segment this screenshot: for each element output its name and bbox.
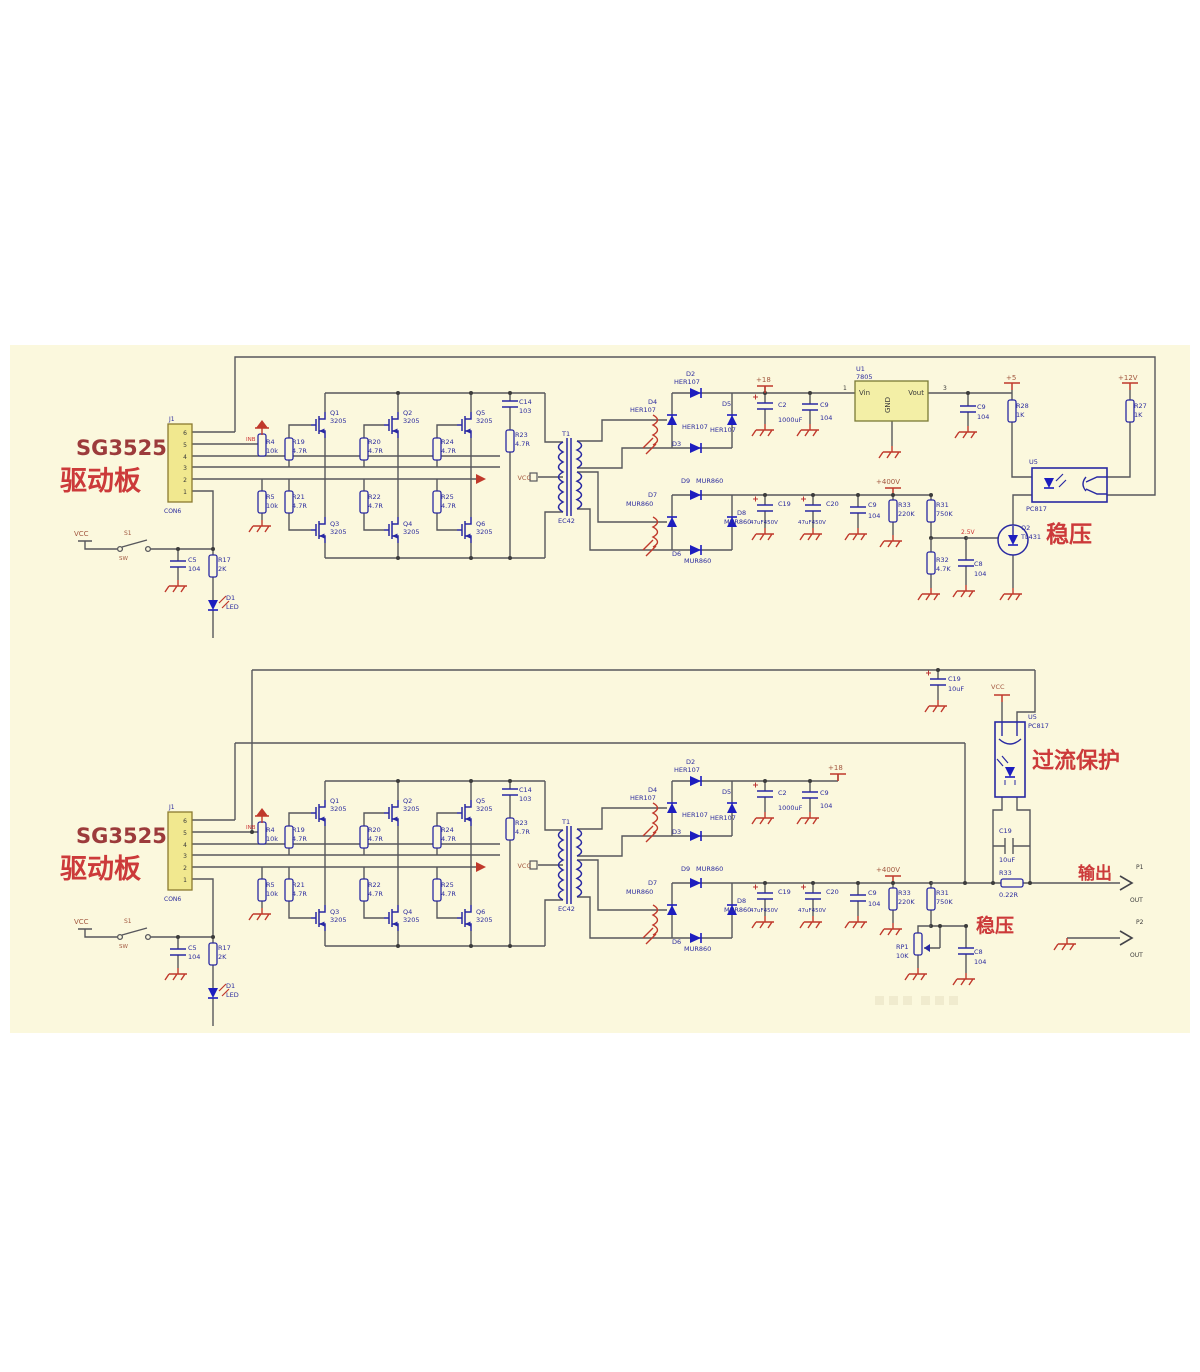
component-label: C19 — [778, 888, 791, 896]
component-label: 4.7K — [936, 565, 951, 573]
component-label: 104 — [820, 414, 832, 422]
component-label: S1 — [124, 530, 132, 537]
component-label: C19 — [778, 500, 791, 508]
component-label: T1 — [561, 818, 570, 826]
component-label: C9 — [977, 403, 986, 411]
component-label: HER107 — [710, 814, 736, 822]
component-label: 10K — [896, 952, 909, 960]
pin-number: 5 — [183, 442, 187, 449]
component-label: C20 — [826, 888, 839, 896]
component-label: 3205 — [476, 916, 493, 924]
component-label: 4.7R — [515, 440, 530, 448]
net-label: +400V — [876, 478, 900, 486]
component-label: 104 — [974, 570, 986, 578]
component-label: TL431 — [1020, 533, 1041, 541]
annotation: 稳压 — [976, 914, 1014, 937]
component-label: 10k — [266, 502, 278, 510]
component-label: 2K — [218, 953, 227, 961]
component-label: PC817 — [1026, 505, 1047, 513]
pin-number: 2 — [183, 865, 187, 872]
net-label: VCC — [517, 862, 531, 870]
component-label: 3205 — [476, 417, 493, 425]
component-label: Q4 — [403, 908, 412, 916]
component-label: T1 — [561, 430, 570, 438]
component-label: D7 — [648, 879, 657, 887]
component-label: 104 — [977, 413, 989, 421]
component-label: 7805 — [856, 373, 873, 381]
component-label: EC42 — [558, 905, 575, 913]
component-label: D1 — [226, 982, 235, 990]
component-label: MUR860 — [696, 477, 723, 485]
net-label: +12V — [1118, 374, 1138, 382]
component-label: R4 — [266, 826, 275, 834]
component-label: R17 — [218, 944, 231, 952]
component-label: MUR860 — [626, 500, 653, 508]
component-label: 0.22R — [999, 891, 1018, 899]
component-label: 3205 — [476, 528, 493, 536]
net-label: VCC — [517, 474, 531, 482]
pin-number: 4 — [183, 454, 187, 461]
component-label: MUR860 — [696, 865, 723, 873]
component-label: 10k — [266, 447, 278, 455]
component-label: R33 — [898, 889, 911, 897]
component-label: 4.7R — [368, 890, 383, 898]
component-label: C9 — [868, 889, 877, 897]
pin-number: 1 — [183, 877, 187, 884]
component-label: C14 — [519, 398, 532, 406]
component-label: D5 — [722, 788, 731, 796]
component-label: 104 — [188, 565, 200, 573]
annotation: 过流保护 — [1032, 748, 1120, 774]
component-label: SW — [119, 944, 128, 950]
board-title: SG3525 — [76, 824, 167, 848]
component-label: D8 — [737, 509, 746, 517]
pin-number: 3 — [943, 385, 947, 392]
component-label: 4.7R — [368, 447, 383, 455]
schematic-page: SG3525SG3525驱动板驱动板J1J1CON6CON66655443322… — [0, 0, 1200, 1372]
pin-number: 4 — [183, 842, 187, 849]
component-label: 4.7R — [441, 447, 456, 455]
component-label: 3205 — [403, 805, 420, 813]
component-label: Q2 — [1021, 524, 1030, 532]
component-label: R23 — [515, 819, 528, 827]
component-label: C20 — [826, 500, 839, 508]
component-label: 104 — [868, 512, 880, 520]
component-label: 104 — [820, 802, 832, 810]
component-label: 103 — [519, 407, 531, 415]
ic-pin-label: Vout — [908, 389, 924, 397]
component-label: 4.7R — [368, 502, 383, 510]
component-label: D2 — [686, 758, 695, 766]
component-label: 104 — [868, 900, 880, 908]
component-label: R23 — [515, 431, 528, 439]
component-label: 10uF — [999, 856, 1015, 864]
net-label: INB — [246, 825, 256, 831]
net-label: VCC — [991, 683, 1005, 691]
component-label: MUR860 — [684, 557, 711, 565]
ic-pin-label: Vin — [859, 389, 870, 397]
component-label: D9 — [681, 865, 690, 873]
component-label: 3205 — [330, 417, 347, 425]
component-label: 10uF — [948, 685, 964, 693]
component-label: R32 — [936, 556, 949, 564]
component-label: R31 — [936, 889, 949, 897]
component-label: 47uF450V — [750, 520, 778, 526]
component-label: D3 — [672, 828, 681, 836]
component-label: C14 — [519, 786, 532, 794]
component-label: 4.7R — [292, 835, 307, 843]
component-label: 4.7R — [368, 835, 383, 843]
component-label: OUT — [1130, 952, 1143, 959]
component-label: 10k — [266, 835, 278, 843]
component-label: Q3 — [330, 908, 339, 916]
component-label: R24 — [441, 438, 454, 446]
component-label: HER107 — [630, 794, 656, 802]
component-label: R24 — [441, 826, 454, 834]
component-label: LED — [226, 991, 239, 999]
component-label: D6 — [672, 938, 681, 946]
component-label: C9 — [820, 789, 829, 797]
pin-number: 1 — [843, 385, 847, 392]
pin-number: 2 — [183, 477, 187, 484]
component-label: 104 — [188, 953, 200, 961]
component-label: Q3 — [330, 520, 339, 528]
component-label: R22 — [368, 493, 381, 501]
component-label: R19 — [292, 826, 305, 834]
component-label: 103 — [519, 795, 531, 803]
component-label: 104 — [974, 958, 986, 966]
component-label: 3205 — [330, 916, 347, 924]
component-label: MUR860 — [684, 945, 711, 953]
net-label: INB — [246, 437, 256, 443]
component-label: R27 — [1134, 402, 1147, 410]
component-label: C2 — [778, 401, 787, 409]
component-label: 3205 — [403, 916, 420, 924]
component-label: P2 — [1136, 919, 1144, 926]
component-label: R22 — [368, 881, 381, 889]
component-label: 47uF450V — [798, 520, 826, 526]
component-label: 4.7R — [292, 502, 307, 510]
component-label: 1K — [1016, 411, 1025, 419]
component-label: Q1 — [330, 797, 339, 805]
component-label: 3205 — [403, 528, 420, 536]
component-label: HER107 — [682, 811, 708, 819]
component-label: Q6 — [476, 908, 485, 916]
component-label: 750K — [936, 510, 953, 518]
component-label: C9 — [820, 401, 829, 409]
component-label: C5 — [188, 556, 197, 564]
component-label: D6 — [672, 550, 681, 558]
component-label: HER107 — [710, 426, 736, 434]
component-label: Q2 — [403, 797, 412, 805]
component-label: 3205 — [476, 805, 493, 813]
component-label: 220K — [898, 510, 915, 518]
component-label: R33 — [999, 869, 1012, 877]
component-label: C5 — [188, 944, 197, 952]
board-title-cn: 驱动板 — [60, 466, 141, 497]
component-label: 750K — [936, 898, 953, 906]
component-label: C2 — [778, 789, 787, 797]
component-label: CON6 — [164, 896, 181, 903]
component-label: D7 — [648, 491, 657, 499]
component-label: 47uF450V — [798, 908, 826, 914]
net-label: +18 — [828, 764, 843, 772]
component-label: 1000uF — [778, 416, 803, 424]
component-label: J1 — [168, 804, 175, 811]
component-label: 3205 — [403, 417, 420, 425]
component-label: Q1 — [330, 409, 339, 417]
component-label: Q6 — [476, 520, 485, 528]
component-label: Q2 — [403, 409, 412, 417]
component-label: J1 — [168, 416, 175, 423]
trimmer-rp1 — [914, 933, 922, 955]
pin-number: 6 — [183, 818, 187, 825]
component-label: R25 — [441, 493, 454, 501]
pin-number: 1 — [183, 489, 187, 496]
annotation: 稳压 — [1046, 521, 1092, 548]
component-label: SW — [119, 556, 128, 562]
component-label: 10k — [266, 890, 278, 898]
component-label: D1 — [226, 594, 235, 602]
component-label: Q5 — [476, 409, 485, 417]
net-label: +400V — [876, 866, 900, 874]
component-label: R21 — [292, 493, 305, 501]
component-label: R5 — [266, 881, 275, 889]
annotation: 输出 — [1078, 863, 1112, 884]
pin-number: 6 — [183, 430, 187, 437]
board-title: SG3525 — [76, 436, 167, 460]
component-label: 4.7R — [441, 835, 456, 843]
component-label: CON6 — [164, 508, 181, 515]
component-label: R25 — [441, 881, 454, 889]
component-label: R5 — [266, 493, 275, 501]
component-label: D4 — [648, 398, 657, 406]
component-label: 4.7R — [515, 828, 530, 836]
component-label: P1 — [1136, 864, 1144, 871]
component-label: R31 — [936, 501, 949, 509]
schematic-canvas: SG3525SG3525驱动板驱动板J1J1CON6CON66655443322… — [0, 0, 1200, 1372]
component-label: D8 — [737, 897, 746, 905]
component-label: D2 — [686, 370, 695, 378]
component-label: U5 — [1029, 458, 1038, 466]
component-label: R19 — [292, 438, 305, 446]
component-label: LED — [226, 603, 239, 611]
component-label: R33 — [898, 501, 911, 509]
board-title-cn: 驱动板 — [60, 854, 141, 885]
component-label: 1K — [1134, 411, 1143, 419]
component-label: 4.7R — [441, 890, 456, 898]
component-label: R20 — [368, 826, 381, 834]
component-label: 1000uF — [778, 804, 803, 812]
component-label: 3205 — [330, 805, 347, 813]
component-label: 4.7R — [292, 447, 307, 455]
component-label: OUT — [1130, 897, 1143, 904]
ic-pin-label: GND — [884, 397, 892, 413]
component-label: S1 — [124, 918, 132, 925]
component-label: EC42 — [558, 517, 575, 525]
component-label: R4 — [266, 438, 275, 446]
net-label: 2.5V — [961, 529, 976, 536]
net-label: +5 — [1006, 374, 1016, 382]
component-label: R20 — [368, 438, 381, 446]
component-label: HER107 — [682, 423, 708, 431]
component-label: R28 — [1016, 402, 1029, 410]
component-label: Q4 — [403, 520, 412, 528]
component-label: C19 — [999, 827, 1012, 835]
pin-number: 3 — [183, 853, 187, 860]
component-label: HER107 — [674, 766, 700, 774]
component-label: C9 — [868, 501, 877, 509]
net-label: +18 — [756, 376, 771, 384]
component-label: D9 — [681, 477, 690, 485]
component-label: R17 — [218, 556, 231, 564]
component-label: R21 — [292, 881, 305, 889]
component-label: C19 — [948, 675, 961, 683]
component-label: C8 — [974, 560, 983, 568]
component-label: MUR860 — [626, 888, 653, 896]
component-label: C8 — [974, 948, 983, 956]
component-label: MUR860 — [724, 518, 751, 526]
net-label: VCC — [74, 918, 89, 926]
component-label: PC817 — [1028, 722, 1049, 730]
component-label: MUR860 — [724, 906, 751, 914]
component-label: U5 — [1028, 713, 1037, 721]
component-label: HER107 — [630, 406, 656, 414]
pin-number: 3 — [183, 465, 187, 472]
component-label: 3205 — [330, 528, 347, 536]
component-label: 47uF450V — [750, 908, 778, 914]
component-label: D5 — [722, 400, 731, 408]
component-label: Q5 — [476, 797, 485, 805]
pin-number: 5 — [183, 830, 187, 837]
component-label: 4.7R — [292, 890, 307, 898]
component-label: D4 — [648, 786, 657, 794]
component-label: D3 — [672, 440, 681, 448]
component-label: RP1 — [896, 943, 909, 951]
net-label: VCC — [74, 530, 89, 538]
component-label: 4.7R — [441, 502, 456, 510]
component-label: 2K — [218, 565, 227, 573]
component-label: U1 — [856, 365, 865, 373]
component-label: HER107 — [674, 378, 700, 386]
component-label: 220K — [898, 898, 915, 906]
